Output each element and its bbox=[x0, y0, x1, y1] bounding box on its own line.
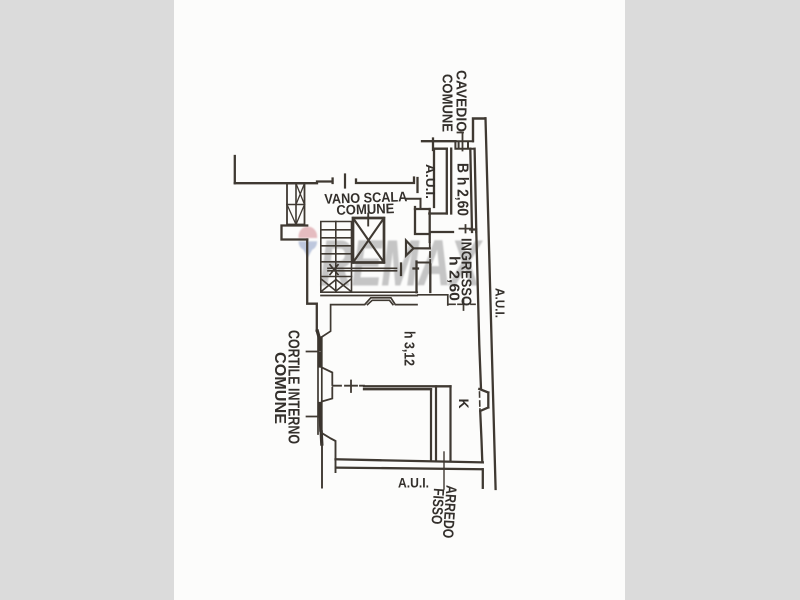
svg-text:COMUNE: COMUNE bbox=[336, 200, 394, 218]
svg-text:K: K bbox=[456, 399, 472, 409]
svg-text:FISSO: FISSO bbox=[427, 488, 446, 525]
svg-text:COMUNE: COMUNE bbox=[271, 352, 288, 424]
svg-text:B h 2,60: B h 2,60 bbox=[454, 163, 471, 216]
svg-text:A.U.I.: A.U.I. bbox=[423, 164, 438, 199]
svg-text:h 2,60: h 2,60 bbox=[446, 256, 463, 301]
svg-text:A.U.I.: A.U.I. bbox=[493, 288, 508, 318]
svg-text:COMUNE: COMUNE bbox=[439, 74, 456, 132]
svg-text:A.U.I.: A.U.I. bbox=[398, 476, 429, 491]
svg-text:h 3,12: h 3,12 bbox=[401, 331, 418, 366]
